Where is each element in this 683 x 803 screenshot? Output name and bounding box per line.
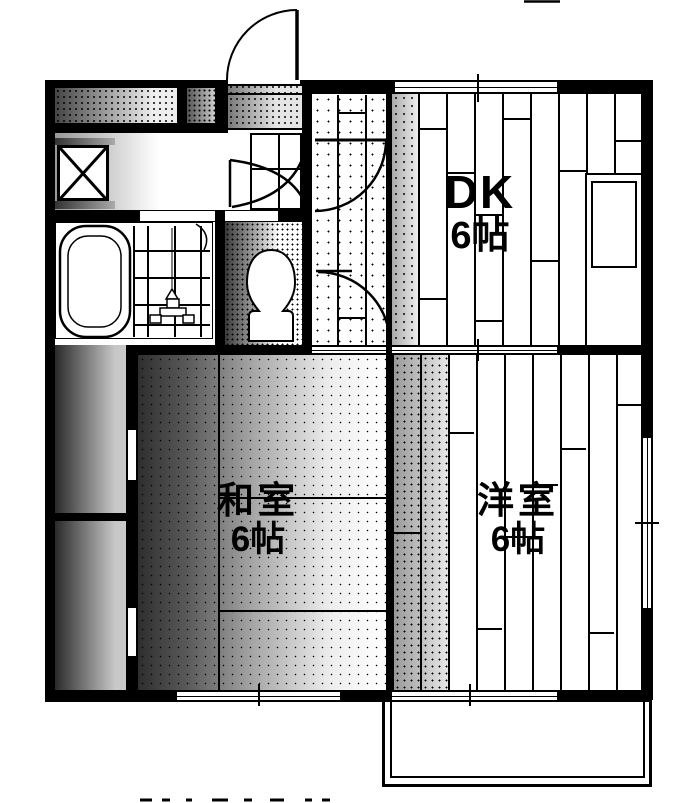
dk-youshitsu-sliding-door — [392, 345, 557, 355]
floor-plan: DK 6帖 和室 6帖 洋室 6帖 — [0, 0, 683, 803]
kitchen-sink — [591, 181, 637, 268]
dk-top-window — [395, 80, 557, 94]
shower-grid-line — [133, 250, 210, 252]
room-label-washitsu: 和室 6帖 — [196, 482, 320, 560]
balcony-inner — [390, 700, 645, 778]
hall-shoe-cabinet-line — [337, 112, 366, 114]
exterior-wall-left — [45, 80, 55, 700]
vanity-counter — [250, 133, 302, 210]
hall-floor-joint — [337, 317, 366, 319]
wall-toilet-top — [278, 210, 302, 222]
shower-grid-line — [174, 226, 176, 337]
wall-bath-toilet — [215, 210, 225, 350]
plank-joint — [616, 140, 642, 142]
closet-upper — [55, 345, 126, 513]
shower-grid-line — [147, 226, 149, 337]
room-size: 6帖 — [456, 520, 580, 560]
closet-door-gap-lower — [127, 608, 137, 656]
plank-joint — [394, 532, 420, 534]
exterior-wall-bottom-left — [45, 690, 177, 702]
room-size: 6帖 — [420, 214, 540, 258]
room-label-youshitsu: 洋室 6帖 — [456, 482, 580, 560]
vanity-divider — [250, 168, 302, 170]
hall-floor-line — [337, 95, 339, 345]
toilet-door — [225, 210, 278, 222]
shower-grid-line — [200, 226, 202, 337]
washitsu-bottom-window — [177, 690, 340, 702]
shower-grid-line — [133, 226, 135, 337]
toilet-room-floor — [225, 222, 302, 345]
wall-dk-bottom — [557, 345, 643, 355]
plank-joint — [420, 298, 446, 300]
wall-storage-divider — [177, 88, 187, 123]
storage-band — [55, 88, 177, 123]
storage-band-2 — [187, 88, 215, 123]
room-label-dk: DK 6帖 — [420, 170, 540, 258]
exterior-wall-top-right — [557, 80, 652, 94]
plank-joint — [476, 320, 502, 322]
washing-machine-pan-icon — [57, 145, 109, 201]
wall-toilet-hall — [302, 83, 312, 355]
closet-lower — [55, 521, 126, 690]
shower-grid-line — [133, 324, 210, 326]
plank-joint — [560, 170, 586, 172]
entrance-door-arc — [227, 10, 297, 80]
washitsu-hall-fusuma — [312, 345, 386, 355]
tatami-line — [218, 610, 386, 612]
wall-genkan-left-post — [215, 80, 228, 135]
exterior-wall-top-mid — [300, 80, 395, 94]
plank-joint — [532, 260, 558, 262]
dk-floor-shaded-strip — [392, 94, 418, 345]
genkan-threshold-line — [228, 93, 302, 95]
shower-grid-line — [133, 277, 210, 279]
room-name: DK — [420, 170, 540, 214]
plank-joint — [476, 628, 502, 630]
plank-joint — [420, 128, 446, 130]
youshitsu-strip-line — [420, 355, 422, 690]
wall-washroom-bottom — [45, 210, 140, 222]
shower-grid-line — [133, 304, 210, 306]
wall-closet-divider — [45, 513, 138, 521]
vanity-divider — [278, 133, 280, 210]
room-name: 洋室 — [456, 482, 580, 520]
plank-joint — [448, 432, 474, 434]
genkan-floor — [228, 84, 302, 130]
closet-door-gap-upper — [127, 430, 137, 480]
plank-joint — [504, 118, 530, 120]
genkan-threshold-line — [228, 84, 302, 86]
hall-floor — [312, 94, 386, 345]
genkan-step-line — [228, 128, 302, 130]
washing-machine-shade — [55, 138, 115, 145]
room-name: 和室 — [196, 482, 320, 520]
plank-joint — [588, 632, 614, 634]
plank-joint — [560, 448, 586, 450]
room-size: 6帖 — [196, 520, 320, 560]
wall-washitsu-youshitsu — [386, 355, 394, 690]
washing-machine-shade — [55, 201, 115, 209]
hall-floor-line — [365, 95, 367, 345]
bathroom-door — [140, 210, 215, 222]
plank-joint — [616, 404, 642, 406]
